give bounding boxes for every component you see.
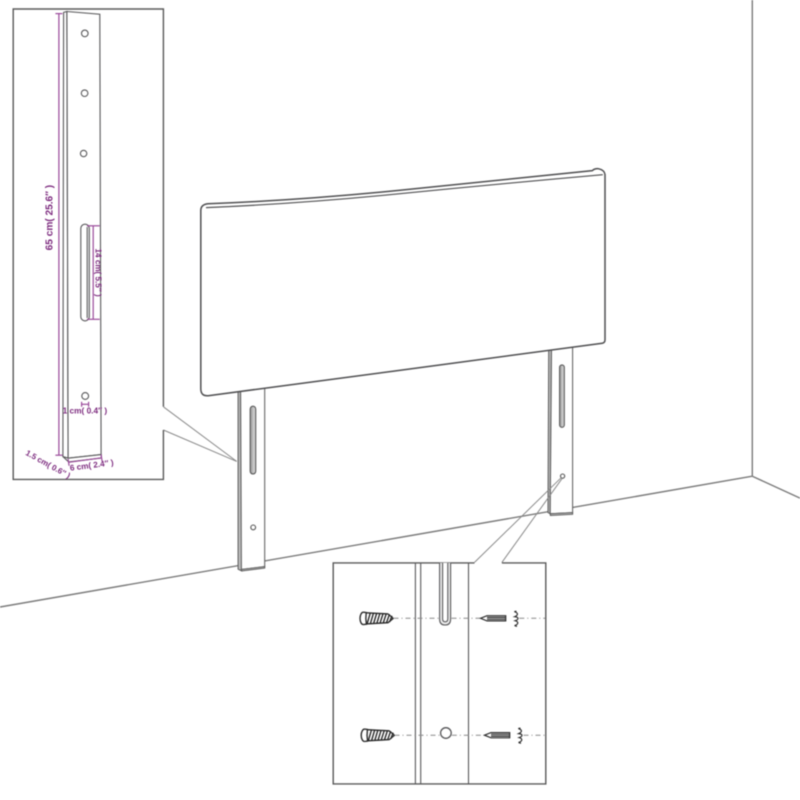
svg-text:14 cm( 5.5″ ): 14 cm( 5.5″ ) [93, 249, 102, 297]
svg-text:65 cm( 25.6″ ): 65 cm( 25.6″ ) [45, 185, 56, 250]
svg-text:1 cm( 0.4″ ): 1 cm( 0.4″ ) [63, 405, 108, 415]
